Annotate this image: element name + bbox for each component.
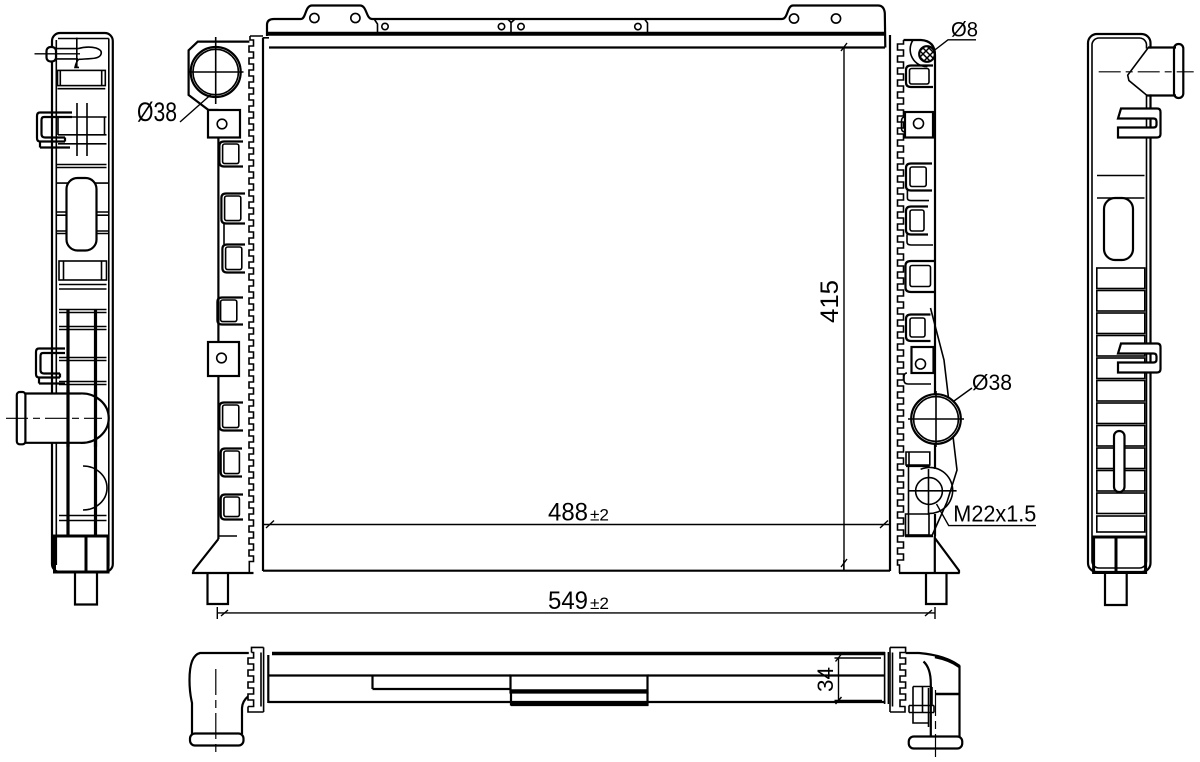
svg-text:±2: ±2 bbox=[590, 506, 609, 525]
svg-text:549: 549 bbox=[548, 587, 588, 615]
svg-text:488: 488 bbox=[548, 499, 588, 527]
svg-text:Ø38: Ø38 bbox=[137, 97, 177, 127]
svg-text:±2: ±2 bbox=[590, 594, 609, 613]
svg-text:Ø38: Ø38 bbox=[972, 370, 1012, 395]
svg-text:34: 34 bbox=[813, 667, 838, 692]
svg-text:415: 415 bbox=[816, 280, 844, 323]
svg-text:Ø8: Ø8 bbox=[951, 19, 978, 42]
svg-text:M22x1.5: M22x1.5 bbox=[953, 501, 1036, 527]
